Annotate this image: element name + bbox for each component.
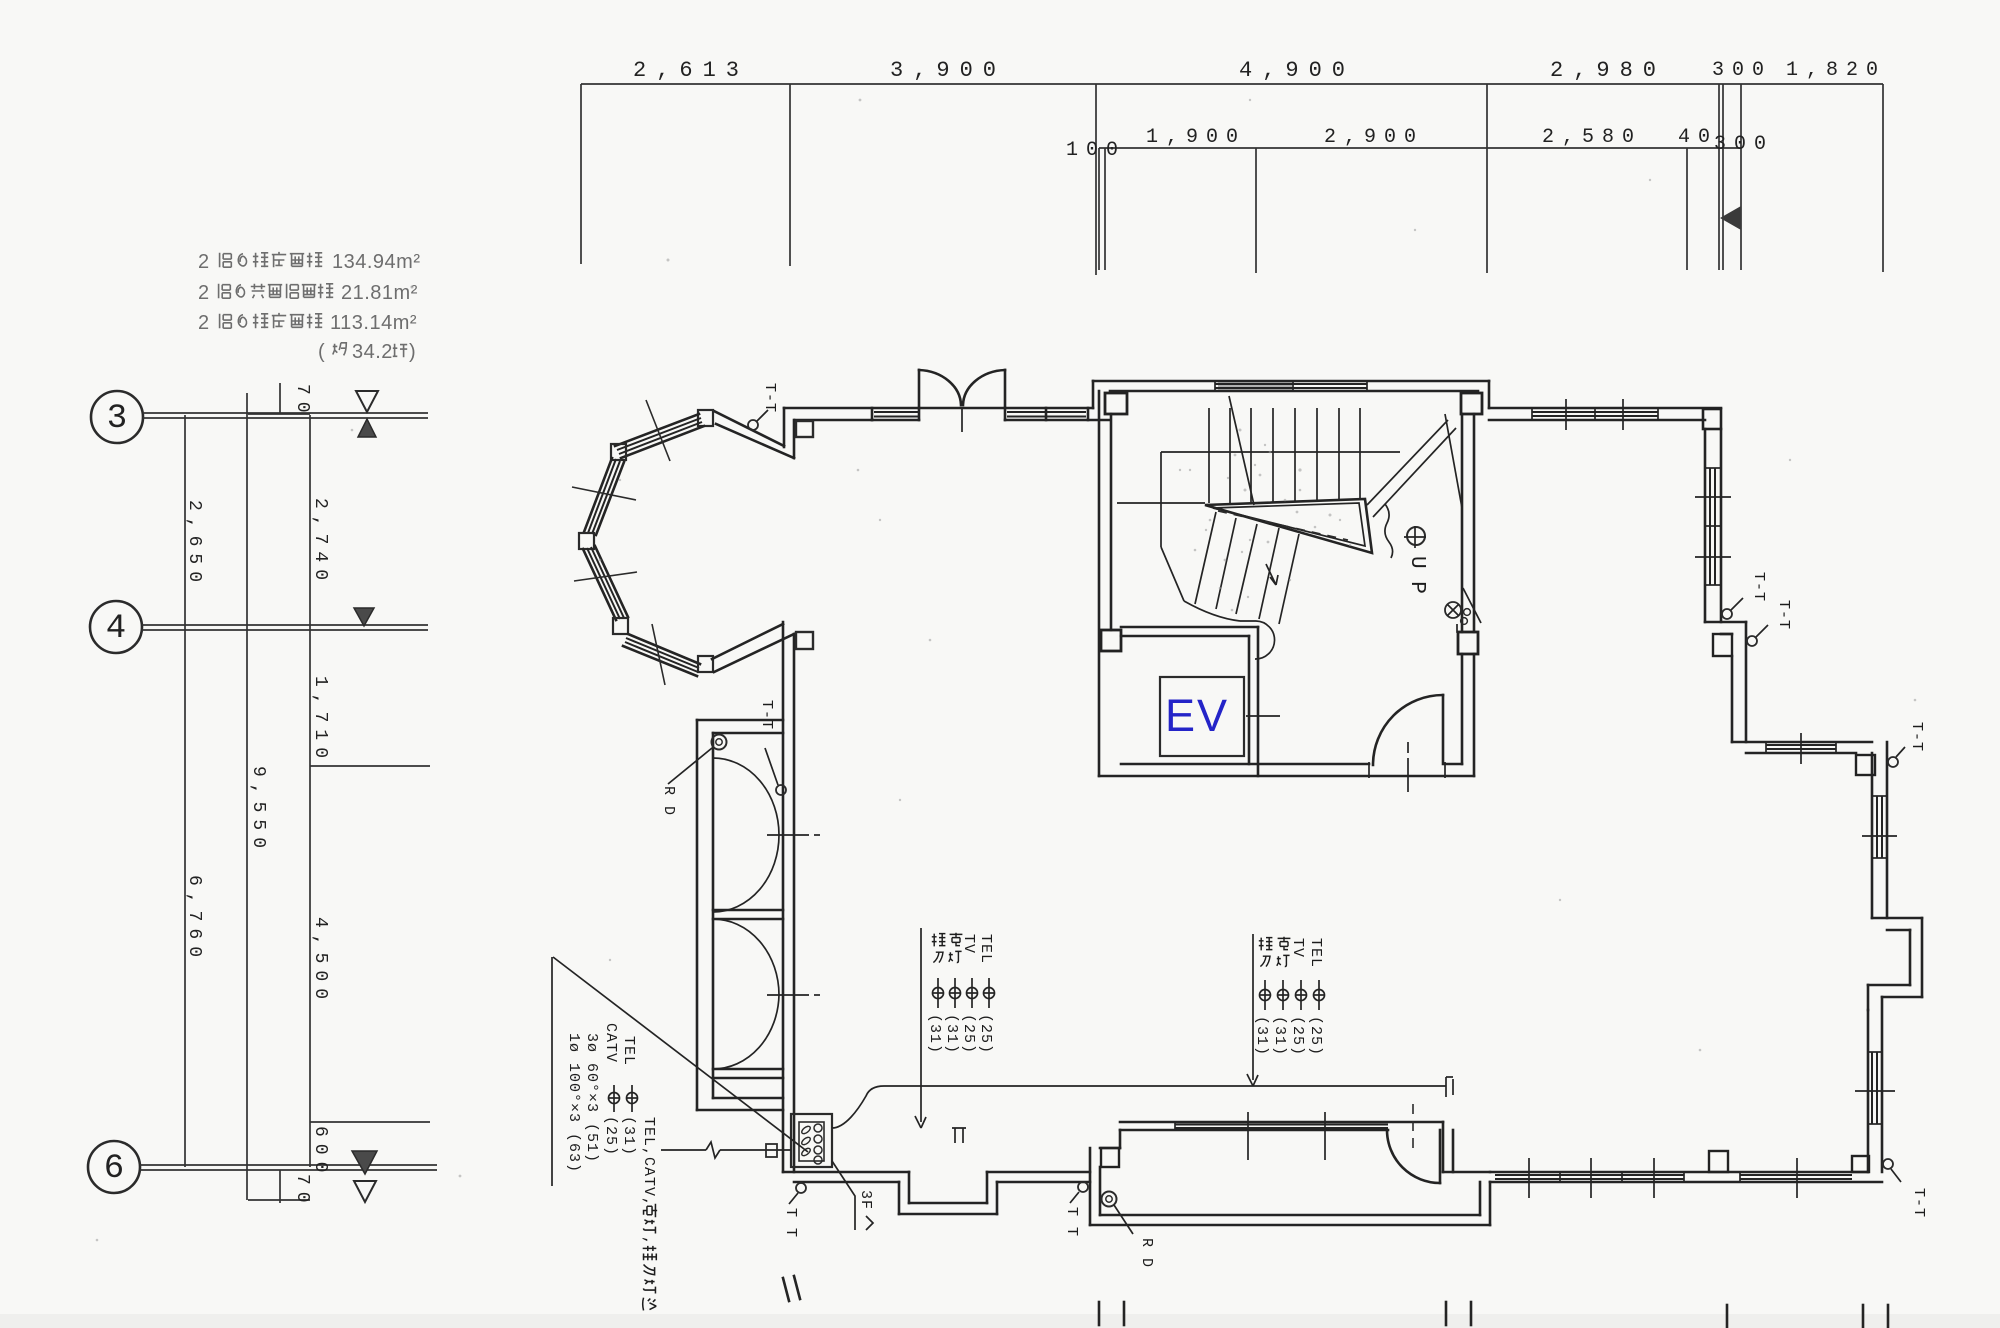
svg-text:(25): (25) [1289, 1016, 1306, 1056]
svg-text:T T: T T [1063, 1207, 1080, 1237]
svg-text:(31): (31) [1271, 1016, 1288, 1056]
svg-text:70: 70 [292, 384, 312, 420]
svg-text:6,760: 6,760 [184, 875, 204, 964]
svg-text:3,900: 3,900 [890, 58, 1006, 83]
svg-text:T-T: T-T [761, 383, 778, 413]
svg-text:T-T: T-T [1908, 722, 1925, 752]
svg-text:70: 70 [292, 1174, 312, 1210]
svg-text:T-T: T-T [1750, 572, 1767, 602]
svg-text:T-T: T-T [758, 700, 775, 730]
svg-text:2: 2 [198, 312, 211, 334]
svg-text:21.81m²: 21.81m² [341, 282, 418, 304]
svg-text:): ) [409, 341, 418, 363]
svg-text:TV: TV [960, 934, 977, 954]
svg-text:R D: R D [660, 786, 677, 816]
svg-text:3ø 60°×3 (51): 3ø 60°×3 (51) [583, 1033, 600, 1163]
svg-text:3F: 3F [857, 1190, 874, 1210]
svg-text:CATV: CATV [602, 1023, 619, 1063]
svg-text:U P: U P [1405, 556, 1428, 594]
svg-text:34.2: 34.2 [352, 341, 393, 363]
svg-text:1,820: 1,820 [1786, 59, 1886, 82]
svg-text:2,740: 2,740 [310, 498, 330, 587]
svg-text:,: , [640, 1236, 657, 1246]
svg-text:4,900: 4,900 [1239, 58, 1355, 83]
svg-text:(31): (31) [620, 1116, 637, 1156]
svg-text:(25): (25) [960, 1014, 977, 1054]
svg-text:2,650: 2,650 [184, 500, 204, 589]
svg-text:6: 6 [104, 1150, 124, 1188]
svg-text:2,900: 2,900 [1324, 126, 1424, 149]
svg-text:EV: EV [1165, 690, 1229, 741]
svg-text:9,550: 9,550 [248, 766, 268, 855]
svg-text:600: 600 [310, 1126, 330, 1179]
svg-text:T-T: T-T [1775, 600, 1792, 630]
svg-text:TEL: TEL [977, 934, 994, 964]
svg-text:2,980: 2,980 [1550, 58, 1666, 83]
svg-text:3: 3 [107, 400, 127, 438]
svg-text:1,900: 1,900 [1146, 126, 1246, 149]
svg-text:R D: R D [1138, 1238, 1155, 1268]
svg-text:TEL,CATV,: TEL,CATV, [640, 1117, 657, 1207]
svg-text:1,710: 1,710 [310, 676, 330, 765]
svg-text:4,500: 4,500 [310, 917, 330, 1006]
svg-text:(: ( [318, 341, 327, 363]
svg-text:T T: T T [782, 1208, 799, 1238]
svg-text:2: 2 [198, 282, 211, 304]
svg-text:40: 40 [1678, 126, 1718, 149]
svg-text:134.94m²: 134.94m² [332, 251, 421, 273]
svg-text:(25): (25) [1307, 1016, 1324, 1056]
svg-text:300: 300 [1714, 133, 1774, 156]
svg-text:2: 2 [198, 251, 211, 273]
svg-text:TEL: TEL [1307, 938, 1324, 968]
svg-text:(31): (31) [1253, 1016, 1270, 1056]
svg-text:TEL: TEL [620, 1036, 637, 1066]
svg-text:(31): (31) [943, 1014, 960, 1054]
svg-text:(25): (25) [977, 1014, 994, 1054]
svg-text:100: 100 [1066, 139, 1126, 162]
svg-text:300: 300 [1712, 59, 1772, 82]
svg-text:2,580: 2,580 [1542, 126, 1642, 149]
svg-text:T-T: T-T [1910, 1188, 1927, 1218]
svg-text:(31): (31) [926, 1014, 943, 1054]
svg-text:113.14m²: 113.14m² [330, 312, 417, 334]
svg-text:4: 4 [106, 610, 126, 648]
svg-text:2,613: 2,613 [633, 58, 749, 83]
svg-text:1ø 100°×3 (63): 1ø 100°×3 (63) [565, 1033, 582, 1173]
svg-text:(25): (25) [602, 1116, 619, 1156]
svg-text:TV: TV [1289, 938, 1306, 958]
